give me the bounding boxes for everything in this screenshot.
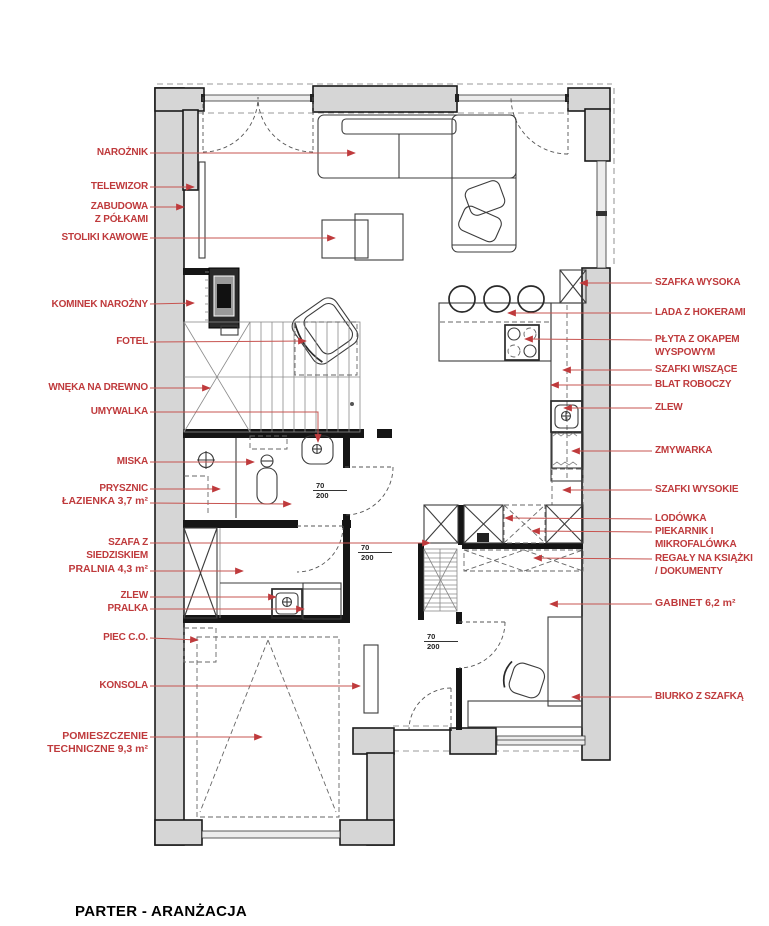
label-lodowka: LODÓWKAPIEKARNIK IMIKROFALÓWKA <box>655 512 736 551</box>
label-lada: LADA Z HOKERAMI <box>655 306 746 319</box>
laundry-sink <box>272 589 302 618</box>
console <box>364 645 378 713</box>
label-plyta: PŁYTA Z OKAPEMWYSPOWYM <box>655 333 739 359</box>
label-naroznik: NAROŻNIK <box>97 146 148 159</box>
label-piec: PIEC C.O. <box>103 631 148 644</box>
label-szafka-wysoka: SZAFKA WYSOKA <box>655 276 740 289</box>
washing-machine <box>303 583 341 619</box>
label-biurko: BIURKO Z SZAFKĄ <box>655 690 744 703</box>
label-miska: MISKA <box>117 455 148 468</box>
door-dimension-office: 70 200 <box>424 632 458 651</box>
main-stairs <box>184 322 360 432</box>
washbasin <box>250 436 333 464</box>
dishwasher <box>552 433 583 505</box>
reference-lines <box>157 84 614 751</box>
door-swings <box>203 97 568 730</box>
label-pralnia: PRALNIA 4,3 m² <box>68 563 148 576</box>
floor-plan-drawing <box>0 0 769 926</box>
technical-room <box>197 637 339 817</box>
label-lazienka: ŁAZIENKA 3,7 m² <box>62 495 148 508</box>
bookshelves <box>464 550 583 571</box>
shower <box>184 438 236 518</box>
label-konsola: KONSOLA <box>99 679 148 692</box>
label-gabinet: GABINET 6,2 m² <box>655 597 736 610</box>
central-heating-boiler <box>184 628 216 662</box>
coffee-tables <box>322 214 403 260</box>
door-dimension-laundry: 70 200 <box>358 543 392 562</box>
door-dimension-bathroom: 70 200 <box>313 481 347 500</box>
bar-stools <box>449 286 544 312</box>
stairs-down <box>424 549 457 611</box>
label-regaly: REGAŁY NA KSIĄŻKI/ DOKUMENTY <box>655 552 753 578</box>
label-zlew-lewy: ZLEW <box>120 589 148 602</box>
cooktop <box>505 325 539 360</box>
label-fotel: FOTEL <box>116 335 148 348</box>
label-szafki-wiszace: SZAFKI WISZĄCE <box>655 363 737 376</box>
label-blat: BLAT ROBOCZY <box>655 378 731 391</box>
office-chair <box>500 659 547 701</box>
floor-plan-page: NAROŻNIK TELEWIZOR ZABUDOWAZ PÓŁKAMI STO… <box>0 0 769 926</box>
toilet <box>257 455 277 504</box>
label-telewizor: TELEWIZOR <box>91 180 148 193</box>
corner-fireplace <box>205 268 239 335</box>
label-stoliki: STOLIKI KAWOWE <box>62 231 148 244</box>
armchair <box>288 294 362 368</box>
label-zlew-prawy: ZLEW <box>655 401 683 414</box>
corner-sofa <box>318 115 516 252</box>
label-wneka: WNĘKA NA DREWNO <box>48 381 148 394</box>
tall-cabinets-row <box>424 505 583 543</box>
wardrobe-with-seat <box>184 528 303 618</box>
label-zmywarka: ZMYWARKA <box>655 444 712 457</box>
windows-openings <box>201 94 607 838</box>
label-zabudowa: ZABUDOWAZ PÓŁKAMI <box>91 200 148 226</box>
label-pralka: PRALKA <box>108 602 148 615</box>
kitchen-counter <box>439 303 583 481</box>
label-umywalka: UMYWALKA <box>91 405 148 418</box>
interior-walls <box>183 268 583 730</box>
tv <box>199 162 205 258</box>
label-pomieszczenie: POMIESZCZENIETECHNICZNE 9,3 m² <box>47 730 148 756</box>
kitchen-sink <box>551 401 582 432</box>
label-prysznic: PRYSZNIC <box>99 482 148 495</box>
page-title: PARTER - ARANŻACJA <box>75 903 247 921</box>
label-kominek: KOMINEK NAROŻNY <box>52 298 148 311</box>
leader-lines <box>150 153 652 737</box>
label-szafki-wysokie: SZAFKI WYSOKIE <box>655 483 738 496</box>
desk <box>468 617 582 727</box>
exterior-walls <box>155 86 610 845</box>
label-szafa: SZAFA ZSIEDZISKIEM <box>86 536 148 562</box>
